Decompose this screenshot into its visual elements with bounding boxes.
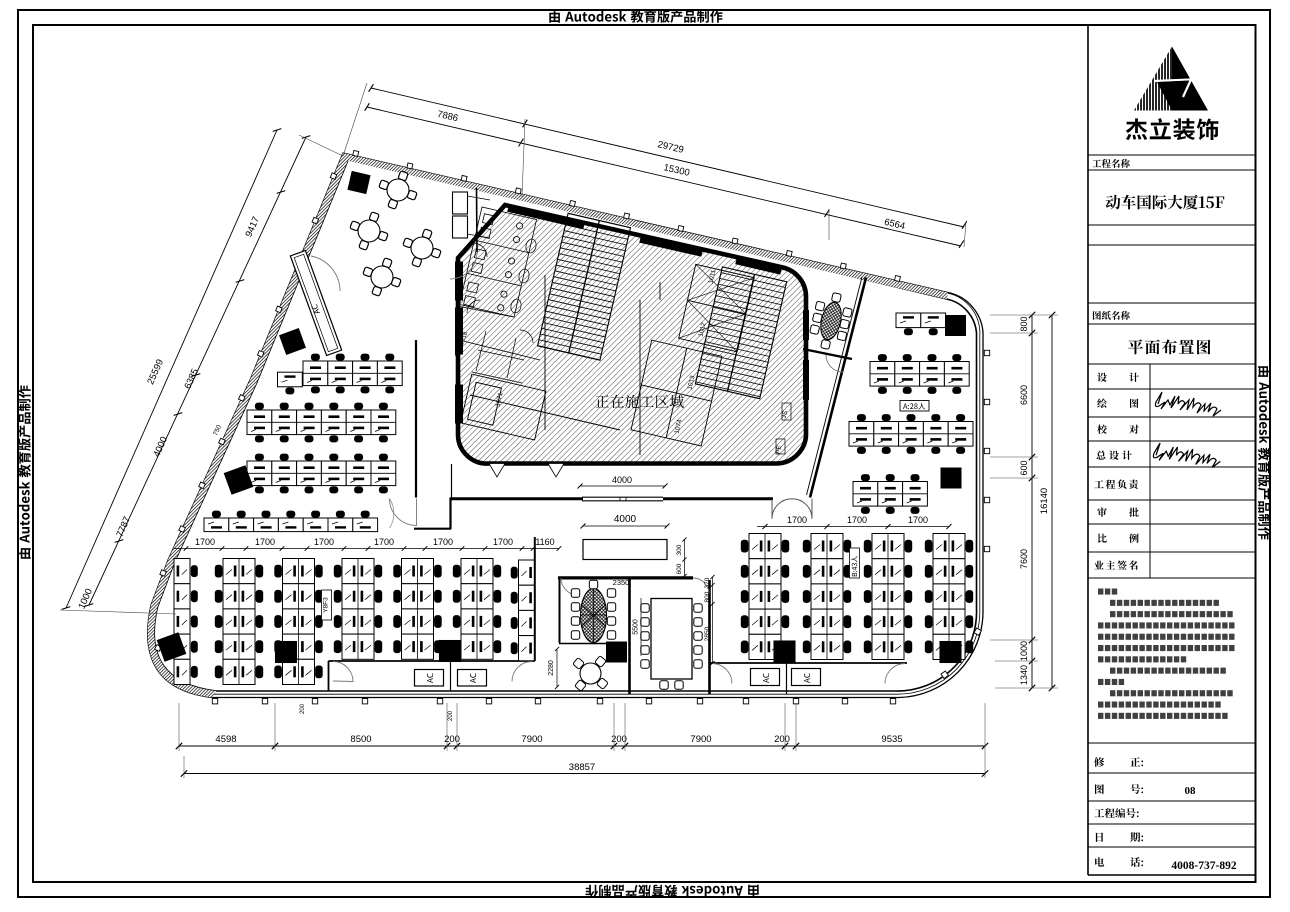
svg-text:08: 08 xyxy=(1185,785,1197,797)
svg-text:Y8F3: Y8F3 xyxy=(323,597,330,613)
svg-text:200: 200 xyxy=(611,734,627,745)
svg-text:1700: 1700 xyxy=(847,515,867,525)
svg-text:1340: 1340 xyxy=(1019,665,1029,685)
svg-text:4598: 4598 xyxy=(215,734,236,745)
svg-text:2350: 2350 xyxy=(613,578,630,587)
svg-text:1700: 1700 xyxy=(255,537,275,547)
svg-text:1700: 1700 xyxy=(433,537,453,547)
svg-text:1700: 1700 xyxy=(374,537,394,547)
svg-text:4008-737-892: 4008-737-892 xyxy=(1171,860,1236,872)
svg-text:600: 600 xyxy=(1019,460,1029,475)
svg-text:200: 200 xyxy=(444,734,460,745)
svg-text:6600: 6600 xyxy=(1019,385,1029,405)
svg-text:370: 370 xyxy=(704,577,711,588)
svg-text:1700: 1700 xyxy=(195,537,215,547)
svg-text:800: 800 xyxy=(704,591,711,602)
svg-text:1700: 1700 xyxy=(908,515,928,525)
svg-text:4000: 4000 xyxy=(614,514,637,525)
svg-text:38857: 38857 xyxy=(569,762,595,773)
svg-text:4000: 4000 xyxy=(612,475,632,485)
svg-text:1000: 1000 xyxy=(1019,641,1029,661)
svg-text:5500: 5500 xyxy=(633,619,640,635)
svg-text:600: 600 xyxy=(676,563,683,574)
svg-text:2850: 2850 xyxy=(704,626,711,641)
svg-text:7900: 7900 xyxy=(690,734,711,745)
svg-text:800: 800 xyxy=(1019,316,1029,331)
svg-text:200: 200 xyxy=(300,703,306,714)
svg-text:8500: 8500 xyxy=(350,734,371,745)
svg-text:200: 200 xyxy=(448,710,454,721)
svg-text:2280: 2280 xyxy=(548,660,555,676)
svg-text:7900: 7900 xyxy=(521,734,542,745)
svg-text:9535: 9535 xyxy=(881,734,902,745)
svg-text:1160: 1160 xyxy=(535,537,554,547)
svg-text:1700: 1700 xyxy=(314,537,334,547)
svg-text:1700: 1700 xyxy=(787,515,807,525)
svg-text:7600: 7600 xyxy=(1019,549,1029,569)
svg-text:16140: 16140 xyxy=(1039,488,1050,514)
svg-text:200: 200 xyxy=(774,734,790,745)
svg-text:1700: 1700 xyxy=(493,537,513,547)
svg-text:300: 300 xyxy=(676,544,683,555)
